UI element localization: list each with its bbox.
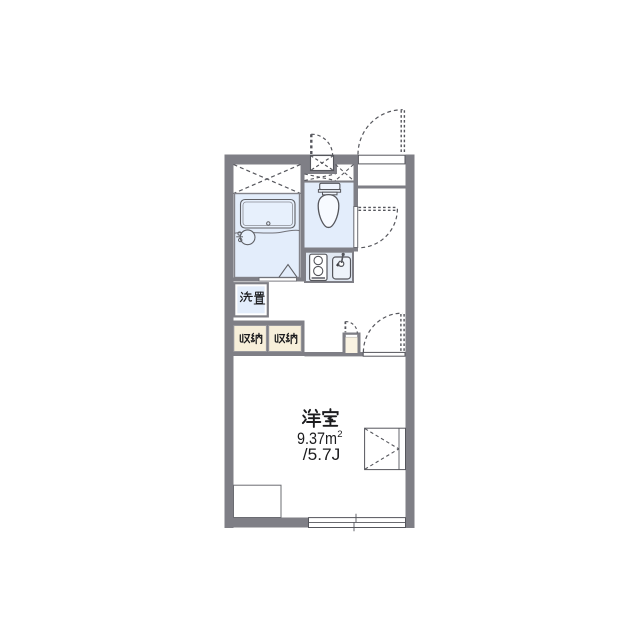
svg-text:2: 2	[337, 429, 342, 440]
svg-text:/5.7J: /5.7J	[303, 446, 341, 464]
